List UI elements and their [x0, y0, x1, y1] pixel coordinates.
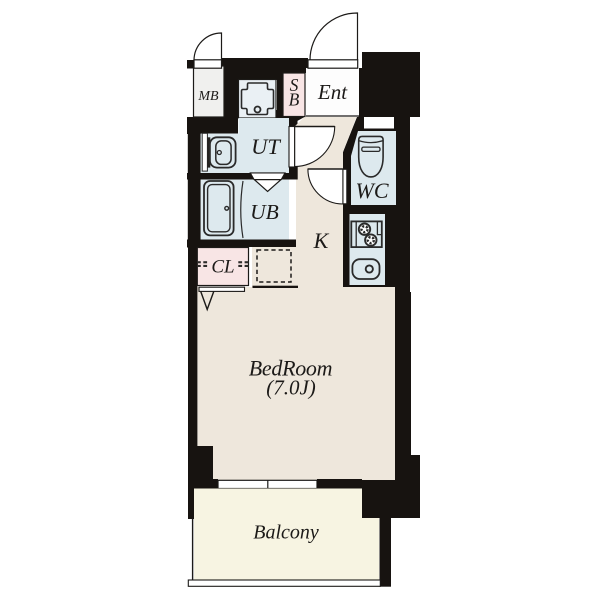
svg-text:Ent: Ent	[317, 80, 348, 104]
svg-text:(7.0J): (7.0J)	[266, 376, 316, 400]
svg-text:CL: CL	[211, 257, 234, 278]
svg-text:WC: WC	[356, 178, 389, 203]
svg-text:MB: MB	[197, 89, 219, 104]
svg-text:UT: UT	[251, 134, 281, 159]
svg-text:UB: UB	[250, 200, 279, 224]
svg-text:B: B	[289, 90, 300, 110]
svg-text:Balcony: Balcony	[253, 522, 319, 544]
svg-text:K: K	[313, 228, 330, 253]
